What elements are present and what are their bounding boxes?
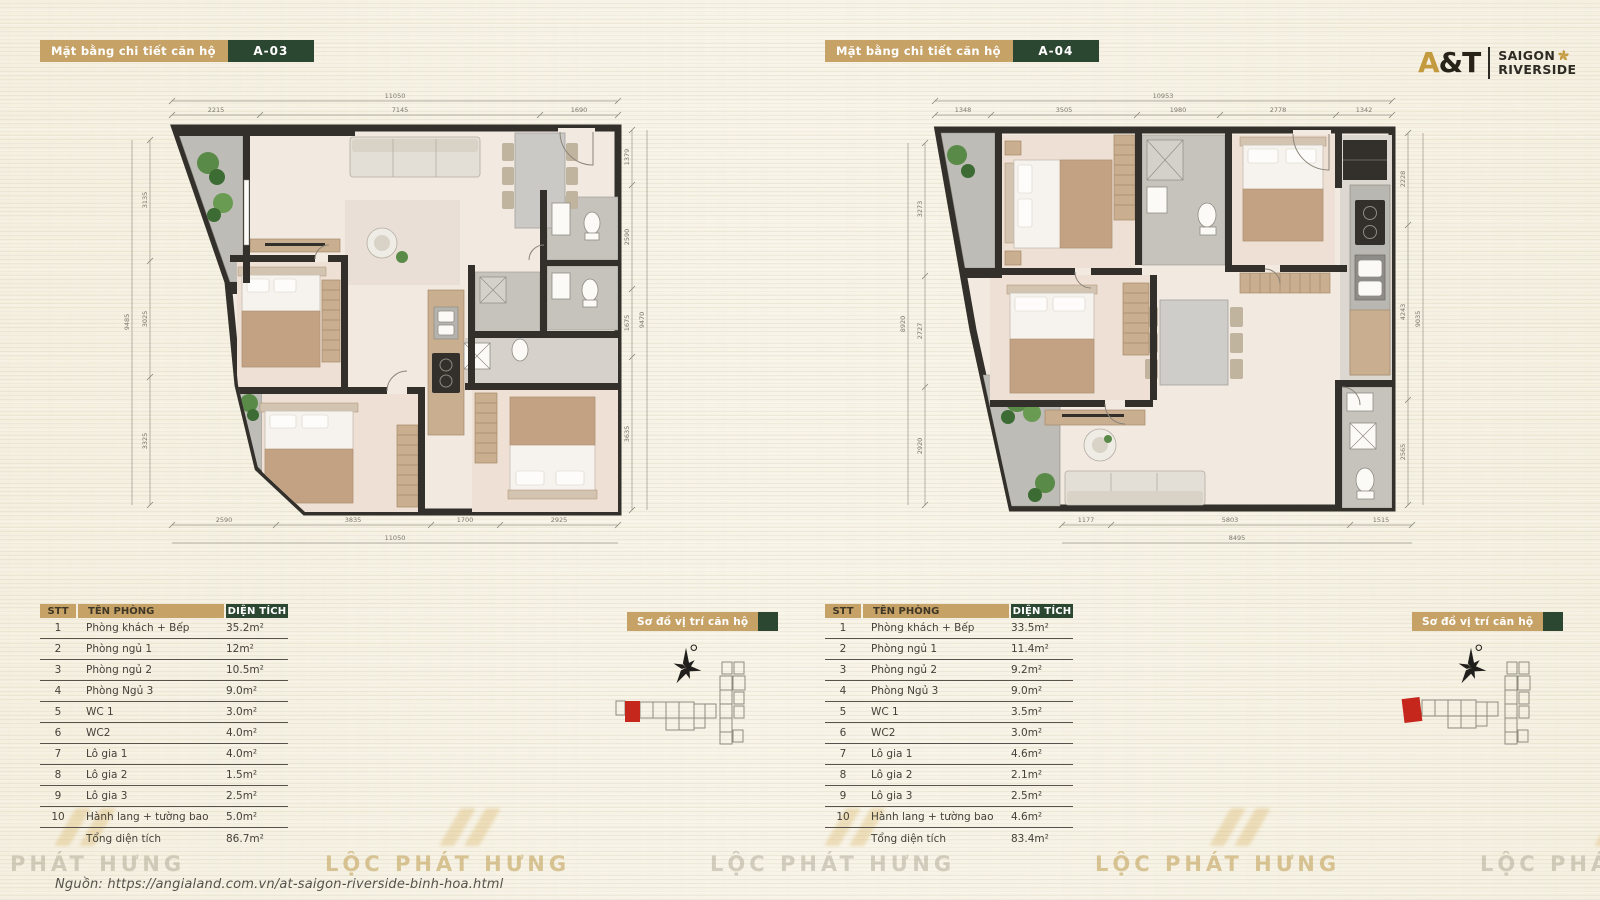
row-number: 2 xyxy=(40,643,76,655)
dim-label: 3135 xyxy=(141,192,149,209)
dim-label: 3635 xyxy=(623,426,631,443)
green-square xyxy=(758,612,778,631)
room-area: 2.5m² xyxy=(217,790,288,802)
dim-label: 3835 xyxy=(345,516,362,524)
wardrobe-1 xyxy=(322,280,340,362)
location-label-a04: Sơ đồ vị trí căn hộ xyxy=(1412,612,1563,631)
dim-label: 10953 xyxy=(1153,92,1174,100)
row-number: 4 xyxy=(40,685,76,697)
site-map-a04 xyxy=(1397,638,1557,756)
room-area: 9.0m² xyxy=(1002,685,1073,697)
dim-label: 7145 xyxy=(392,106,409,114)
table-row: 1 Phòng khách + Bếp 35.2m² xyxy=(40,618,288,639)
row-number: 8 xyxy=(40,769,76,781)
table-body: 1 Phòng khách + Bếp 33.5m² 2 Phòng ngủ 1… xyxy=(825,618,1073,828)
row-number: 9 xyxy=(40,790,76,802)
dim-label: 2590 xyxy=(623,229,631,246)
room-area: 3.0m² xyxy=(217,706,288,718)
compass-icon xyxy=(1458,645,1487,685)
col-area: DIỆN TÍCH xyxy=(1011,604,1073,618)
dim-label: 1980 xyxy=(1170,106,1187,114)
dim-label: 1700 xyxy=(457,516,474,524)
dining-island xyxy=(1145,300,1243,385)
room-name: Lô gia 2 xyxy=(76,769,217,781)
building-outlines xyxy=(1422,662,1530,744)
table-row: 6 WC2 4.0m² xyxy=(40,723,288,744)
room-name: Lô gia 3 xyxy=(76,790,217,802)
logo-divider xyxy=(1488,47,1490,79)
dim-label: 3505 xyxy=(1056,106,1073,114)
table-total-row: Tổng diện tích 83.4m² xyxy=(825,828,1073,850)
rug xyxy=(345,200,460,285)
dim-label: 2727 xyxy=(916,323,924,340)
table-row: 7 Lô gia 1 4.6m² xyxy=(825,744,1073,765)
room-area: 2.1m² xyxy=(1002,769,1073,781)
bed-3 xyxy=(508,397,597,499)
table-row: 1 Phòng khách + Bếp 33.5m² xyxy=(825,618,1073,639)
col-area: DIỆN TÍCH xyxy=(226,604,288,618)
total-value: 86.7m² xyxy=(217,833,288,845)
source-note: Nguồn: https://angialand.com.vn/at-saigo… xyxy=(55,877,503,892)
dim-label: 1348 xyxy=(955,106,972,114)
plan-title-label: Mặt bằng chi tiết căn hộ xyxy=(40,40,228,62)
highlighted-unit xyxy=(1402,697,1423,723)
col-name: TÊN PHÒNG xyxy=(78,604,224,618)
dim-label: 1379 xyxy=(623,149,631,166)
compass-icon xyxy=(673,645,702,685)
table-row: 7 Lô gia 1 4.0m² xyxy=(40,744,288,765)
table-row: 10 Hành lang + tường bao 4.6m² xyxy=(825,807,1073,828)
room-name: Phòng ngủ 1 xyxy=(76,643,217,655)
room-name: Phòng khách + Bếp xyxy=(76,622,217,634)
room-area: 3.5m² xyxy=(1002,706,1073,718)
table-body: 1 Phòng khách + Bếp 35.2m² 2 Phòng ngủ 1… xyxy=(40,618,288,828)
row-number: 1 xyxy=(40,622,76,634)
floorplan-a03: 11050 2215 7145 1690 3135 3025 3325 9485… xyxy=(120,85,665,555)
kitchen-counter xyxy=(1343,140,1390,375)
kitchen-counter xyxy=(428,290,464,435)
dim-label: 8920 xyxy=(899,316,907,333)
row-number: 3 xyxy=(825,664,861,676)
row-number: 6 xyxy=(40,727,76,739)
room-name: Lô gia 3 xyxy=(861,790,1002,802)
unit-code-badge: A-03 xyxy=(228,40,314,62)
room-area: 4.6m² xyxy=(1002,811,1073,823)
row-number: 1 xyxy=(825,622,861,634)
room-area: 11.4m² xyxy=(1002,643,1073,655)
room-area: 2.5m² xyxy=(1002,790,1073,802)
table-row: 8 Lô gia 2 2.1m² xyxy=(825,765,1073,786)
row-number: 2 xyxy=(825,643,861,655)
wardrobe-2 xyxy=(397,425,418,507)
dim-label: 2778 xyxy=(1270,106,1287,114)
watermark-logo-icon xyxy=(445,808,705,852)
row-number: 4 xyxy=(825,685,861,697)
row-number: 10 xyxy=(825,811,861,823)
dim-label: 8495 xyxy=(1229,534,1246,542)
room-area: 35.2m² xyxy=(217,622,288,634)
dim-label: 2925 xyxy=(551,516,568,524)
room-area: 12m² xyxy=(217,643,288,655)
col-name: TÊN PHÒNG xyxy=(863,604,1009,618)
dim-label: 11050 xyxy=(385,92,406,100)
table-row: 5 WC 1 3.5m² xyxy=(825,702,1073,723)
dim-label: 3325 xyxy=(141,433,149,450)
table-row: 3 Phòng ngủ 2 9.2m² xyxy=(825,660,1073,681)
dim-label: 2565 xyxy=(1399,444,1407,461)
table-header: STT TÊN PHÒNG DIỆN TÍCH xyxy=(40,604,288,618)
location-label-a03: Sơ đồ vị trí căn hộ xyxy=(627,612,778,631)
logo-at-monogram: A&T xyxy=(1418,46,1480,79)
room-table-a03: STT TÊN PHÒNG DIỆN TÍCH 1 Phòng khách + … xyxy=(40,604,288,850)
coffee-table xyxy=(1084,429,1116,461)
dim-label: 11050 xyxy=(385,534,406,542)
room-name: WC2 xyxy=(76,727,217,739)
room-name: Phòng ngủ 2 xyxy=(76,664,217,676)
plan-title-label: Mặt bằng chi tiết căn hộ xyxy=(825,40,1013,62)
room-area: 3.0m² xyxy=(1002,727,1073,739)
room-area: 1.5m² xyxy=(217,769,288,781)
wardrobe-3 xyxy=(475,393,497,463)
bed-1 xyxy=(238,267,326,367)
row-number: 3 xyxy=(40,664,76,676)
dim-label: 1675 xyxy=(623,315,631,332)
pinwheel-icon xyxy=(1557,49,1570,62)
sofa xyxy=(1065,471,1205,505)
room-area: 9.2m² xyxy=(1002,664,1073,676)
room-name: Hành lang + tường bao xyxy=(76,811,217,823)
wardrobe-3 xyxy=(1123,283,1149,355)
dim-label: 9485 xyxy=(123,314,131,331)
floorplan-a04: 10953 1348 3505 1980 2778 1342 3273 2727… xyxy=(895,85,1440,565)
table-total-row: Tổng diện tích 86.7m² xyxy=(40,828,288,850)
watermark-logo-icon xyxy=(1215,808,1475,852)
dresser-2 xyxy=(1240,273,1330,293)
room-name: Lô gia 1 xyxy=(861,748,1002,760)
watermark: LỘC PHÁT HƯNG xyxy=(1095,808,1475,876)
plan-title-a04: Mặt bằng chi tiết căn hộ A-04 xyxy=(825,40,1099,62)
room-name: Phòng Ngủ 3 xyxy=(76,685,217,697)
total-value: 83.4m² xyxy=(1002,833,1073,845)
table-row: 4 Phòng Ngủ 3 9.0m² xyxy=(825,681,1073,702)
room-area: 33.5m² xyxy=(1002,622,1073,634)
bed-2 xyxy=(1240,137,1326,241)
room-table-a04: STT TÊN PHÒNG DIỆN TÍCH 1 Phòng khách + … xyxy=(825,604,1073,850)
room-name: Phòng khách + Bếp xyxy=(861,622,1002,634)
brand-logo: A&T SAIGON RIVERSIDE xyxy=(1418,46,1577,79)
dim-label: 2228 xyxy=(1399,171,1407,188)
dim-label: 1515 xyxy=(1373,516,1390,524)
bed-3 xyxy=(1007,285,1097,393)
dim-label: 1690 xyxy=(571,106,588,114)
watermark: LỘC PHÁT HƯNG xyxy=(1480,808,1600,876)
total-label: Tổng diện tích xyxy=(76,833,217,845)
room-name: WC2 xyxy=(861,727,1002,739)
dim-label: 1342 xyxy=(1356,106,1373,114)
table-row: 2 Phòng ngủ 1 11.4m² xyxy=(825,639,1073,660)
unit-code-badge: A-04 xyxy=(1013,40,1099,62)
table-row: 8 Lô gia 2 1.5m² xyxy=(40,765,288,786)
sliding-door xyxy=(244,180,249,245)
room-name: WC 1 xyxy=(76,706,217,718)
row-number: 8 xyxy=(825,769,861,781)
row-number: 7 xyxy=(40,748,76,760)
total-label: Tổng diện tích xyxy=(861,833,1002,845)
sofa xyxy=(350,137,480,177)
dim-label: 2920 xyxy=(916,438,924,455)
dim-label: 2590 xyxy=(216,516,233,524)
col-stt: STT xyxy=(40,604,76,618)
row-number: 9 xyxy=(825,790,861,802)
dim-label: 9470 xyxy=(638,312,646,329)
logo-name: SAIGON RIVERSIDE xyxy=(1498,49,1576,77)
table-row: 10 Hành lang + tường bao 5.0m² xyxy=(40,807,288,828)
col-stt: STT xyxy=(825,604,861,618)
row-number: 6 xyxy=(825,727,861,739)
table-row: 5 WC 1 3.0m² xyxy=(40,702,288,723)
watermark: LỘC PHÁT HƯNG xyxy=(325,808,705,876)
room-name: Lô gia 1 xyxy=(76,748,217,760)
room-area: 4.6m² xyxy=(1002,748,1073,760)
table-header: STT TÊN PHÒNG DIỆN TÍCH xyxy=(825,604,1073,618)
wardrobe-1 xyxy=(1114,135,1135,220)
bed-1 xyxy=(1005,141,1112,265)
highlighted-unit xyxy=(625,701,640,722)
green-square xyxy=(1543,612,1563,631)
row-number: 10 xyxy=(40,811,76,823)
room-name: Lô gia 2 xyxy=(861,769,1002,781)
washer xyxy=(464,343,490,369)
table-row: 3 Phòng ngủ 2 10.5m² xyxy=(40,660,288,681)
table-row: 2 Phòng ngủ 1 12m² xyxy=(40,639,288,660)
room-area: 5.0m² xyxy=(217,811,288,823)
row-number: 5 xyxy=(40,706,76,718)
table-row: 9 Lô gia 3 2.5m² xyxy=(40,786,288,807)
dim-label: 2215 xyxy=(208,106,225,114)
room-area: 10.5m² xyxy=(217,664,288,676)
plan-title-a03: Mặt bằng chi tiết căn hộ A-03 xyxy=(40,40,314,62)
room-name: Phòng Ngủ 3 xyxy=(861,685,1002,697)
room-name: WC 1 xyxy=(861,706,1002,718)
dim-label: 3273 xyxy=(916,201,924,218)
dim-label: 4243 xyxy=(1399,304,1407,321)
row-number: 5 xyxy=(825,706,861,718)
table-row: 6 WC2 3.0m² xyxy=(825,723,1073,744)
room-area: 4.0m² xyxy=(217,748,288,760)
dim-label: 3025 xyxy=(141,311,149,328)
room-name: Phòng ngủ 2 xyxy=(861,664,1002,676)
row-number: 7 xyxy=(825,748,861,760)
dim-label: 9035 xyxy=(1414,311,1422,328)
room-name: Phòng ngủ 1 xyxy=(861,643,1002,655)
brochure-page: LỘC PHÁT HƯNG LỘC PHÁT HƯNG LỘC PHÁT HƯN… xyxy=(0,0,1600,900)
room-name: Hành lang + tường bao xyxy=(861,811,1002,823)
table-row: 4 Phòng Ngủ 3 9.0m² xyxy=(40,681,288,702)
room-area: 4.0m² xyxy=(217,727,288,739)
tv-console xyxy=(1045,410,1145,425)
table-row: 9 Lô gia 3 2.5m² xyxy=(825,786,1073,807)
dim-label: 5803 xyxy=(1222,516,1239,524)
site-map-a03 xyxy=(612,638,772,756)
dim-label: 1177 xyxy=(1078,516,1095,524)
room-area: 9.0m² xyxy=(217,685,288,697)
